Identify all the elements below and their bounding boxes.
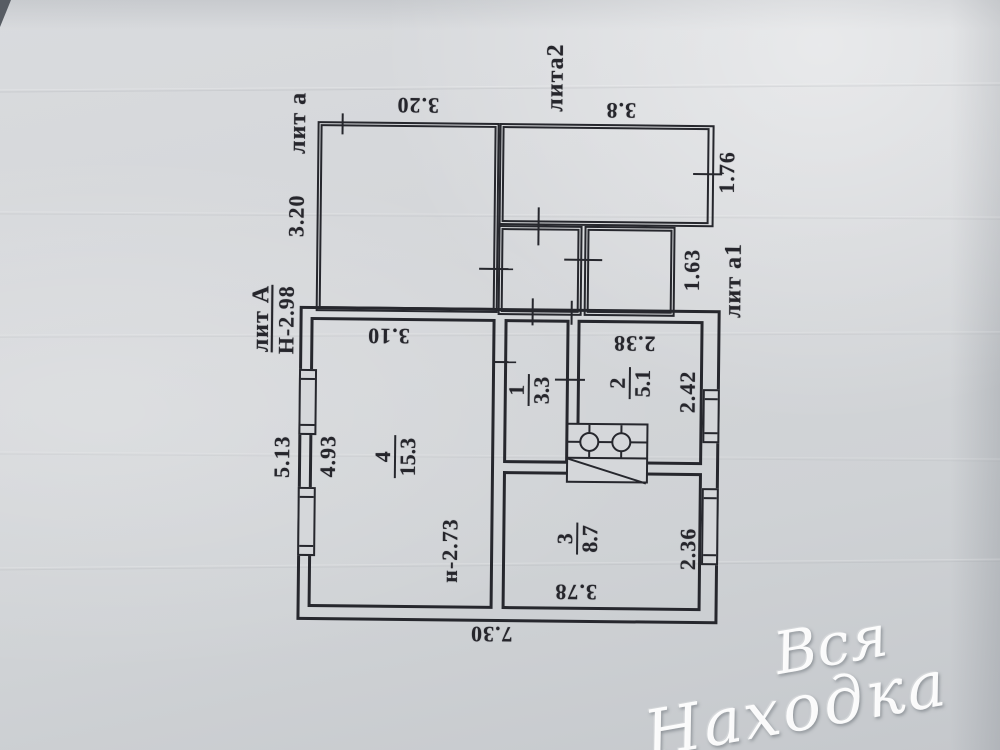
annex-a1-right-room-outline	[584, 226, 676, 317]
label-annex-lit-a1: лит а1	[720, 243, 748, 318]
room-4-number-area: 4 15.3	[371, 435, 420, 478]
dim-house-height-outer: 5.13	[269, 435, 295, 478]
dim-room2-height: 2.42	[675, 371, 701, 414]
dim-room2-width: 2.38	[613, 330, 656, 356]
dim-veranda-width: 3.20	[396, 92, 439, 118]
annex-lita2-outline	[499, 123, 715, 227]
stove-sink-symbol	[565, 422, 650, 487]
label-veranda-lit-a: лит а	[285, 92, 313, 154]
label-main-house-lit-A: лит А	[248, 285, 276, 353]
dim-room3-width: 3.78	[554, 579, 597, 605]
label-annex-lita2: лита2	[542, 43, 570, 112]
dim-house-width: 7.30	[470, 621, 513, 647]
dim-lita2-width: 3.8	[605, 97, 636, 123]
doorway-tick	[537, 207, 539, 245]
dim-a1-height: 1.63	[679, 249, 705, 292]
room-3-number-area: 3 8.7	[553, 523, 602, 555]
room-1-number-area: 1 3.3	[505, 374, 554, 406]
doorway-tick	[571, 301, 573, 325]
label-ceiling-height-main: Н-2.98	[273, 285, 300, 354]
doorway-tick	[564, 259, 602, 261]
doorway-tick	[494, 361, 516, 363]
window-symbol	[702, 389, 720, 443]
window-symbol	[701, 488, 719, 565]
doorway-tick	[342, 113, 344, 134]
doorway-tick	[479, 268, 513, 270]
window-symbol	[297, 487, 316, 556]
dim-veranda-height: 3.20	[283, 194, 309, 237]
doorway-tick	[555, 379, 585, 381]
floor-plan-drawing: лит а лита2 лит а1 лит А Н-2.98 н-2.73 3…	[0, 0, 1000, 750]
veranda-lit-a-outline	[316, 121, 500, 313]
dim-room3-height: 2.36	[675, 528, 701, 571]
window-symbol	[298, 369, 317, 435]
dim-room4-width: 3.10	[367, 323, 410, 349]
scanned-floor-plan-photo: лит а лита2 лит а1 лит А Н-2.98 н-2.73 3…	[0, 0, 1000, 750]
dim-lita2-height: 1.76	[714, 151, 740, 194]
dim-room4-height: 4.93	[315, 435, 341, 478]
doorway-tick	[532, 298, 534, 325]
label-ceiling-height-room4: н-2.73	[437, 518, 464, 583]
room-2-number-area: 2 5.1	[606, 367, 655, 399]
